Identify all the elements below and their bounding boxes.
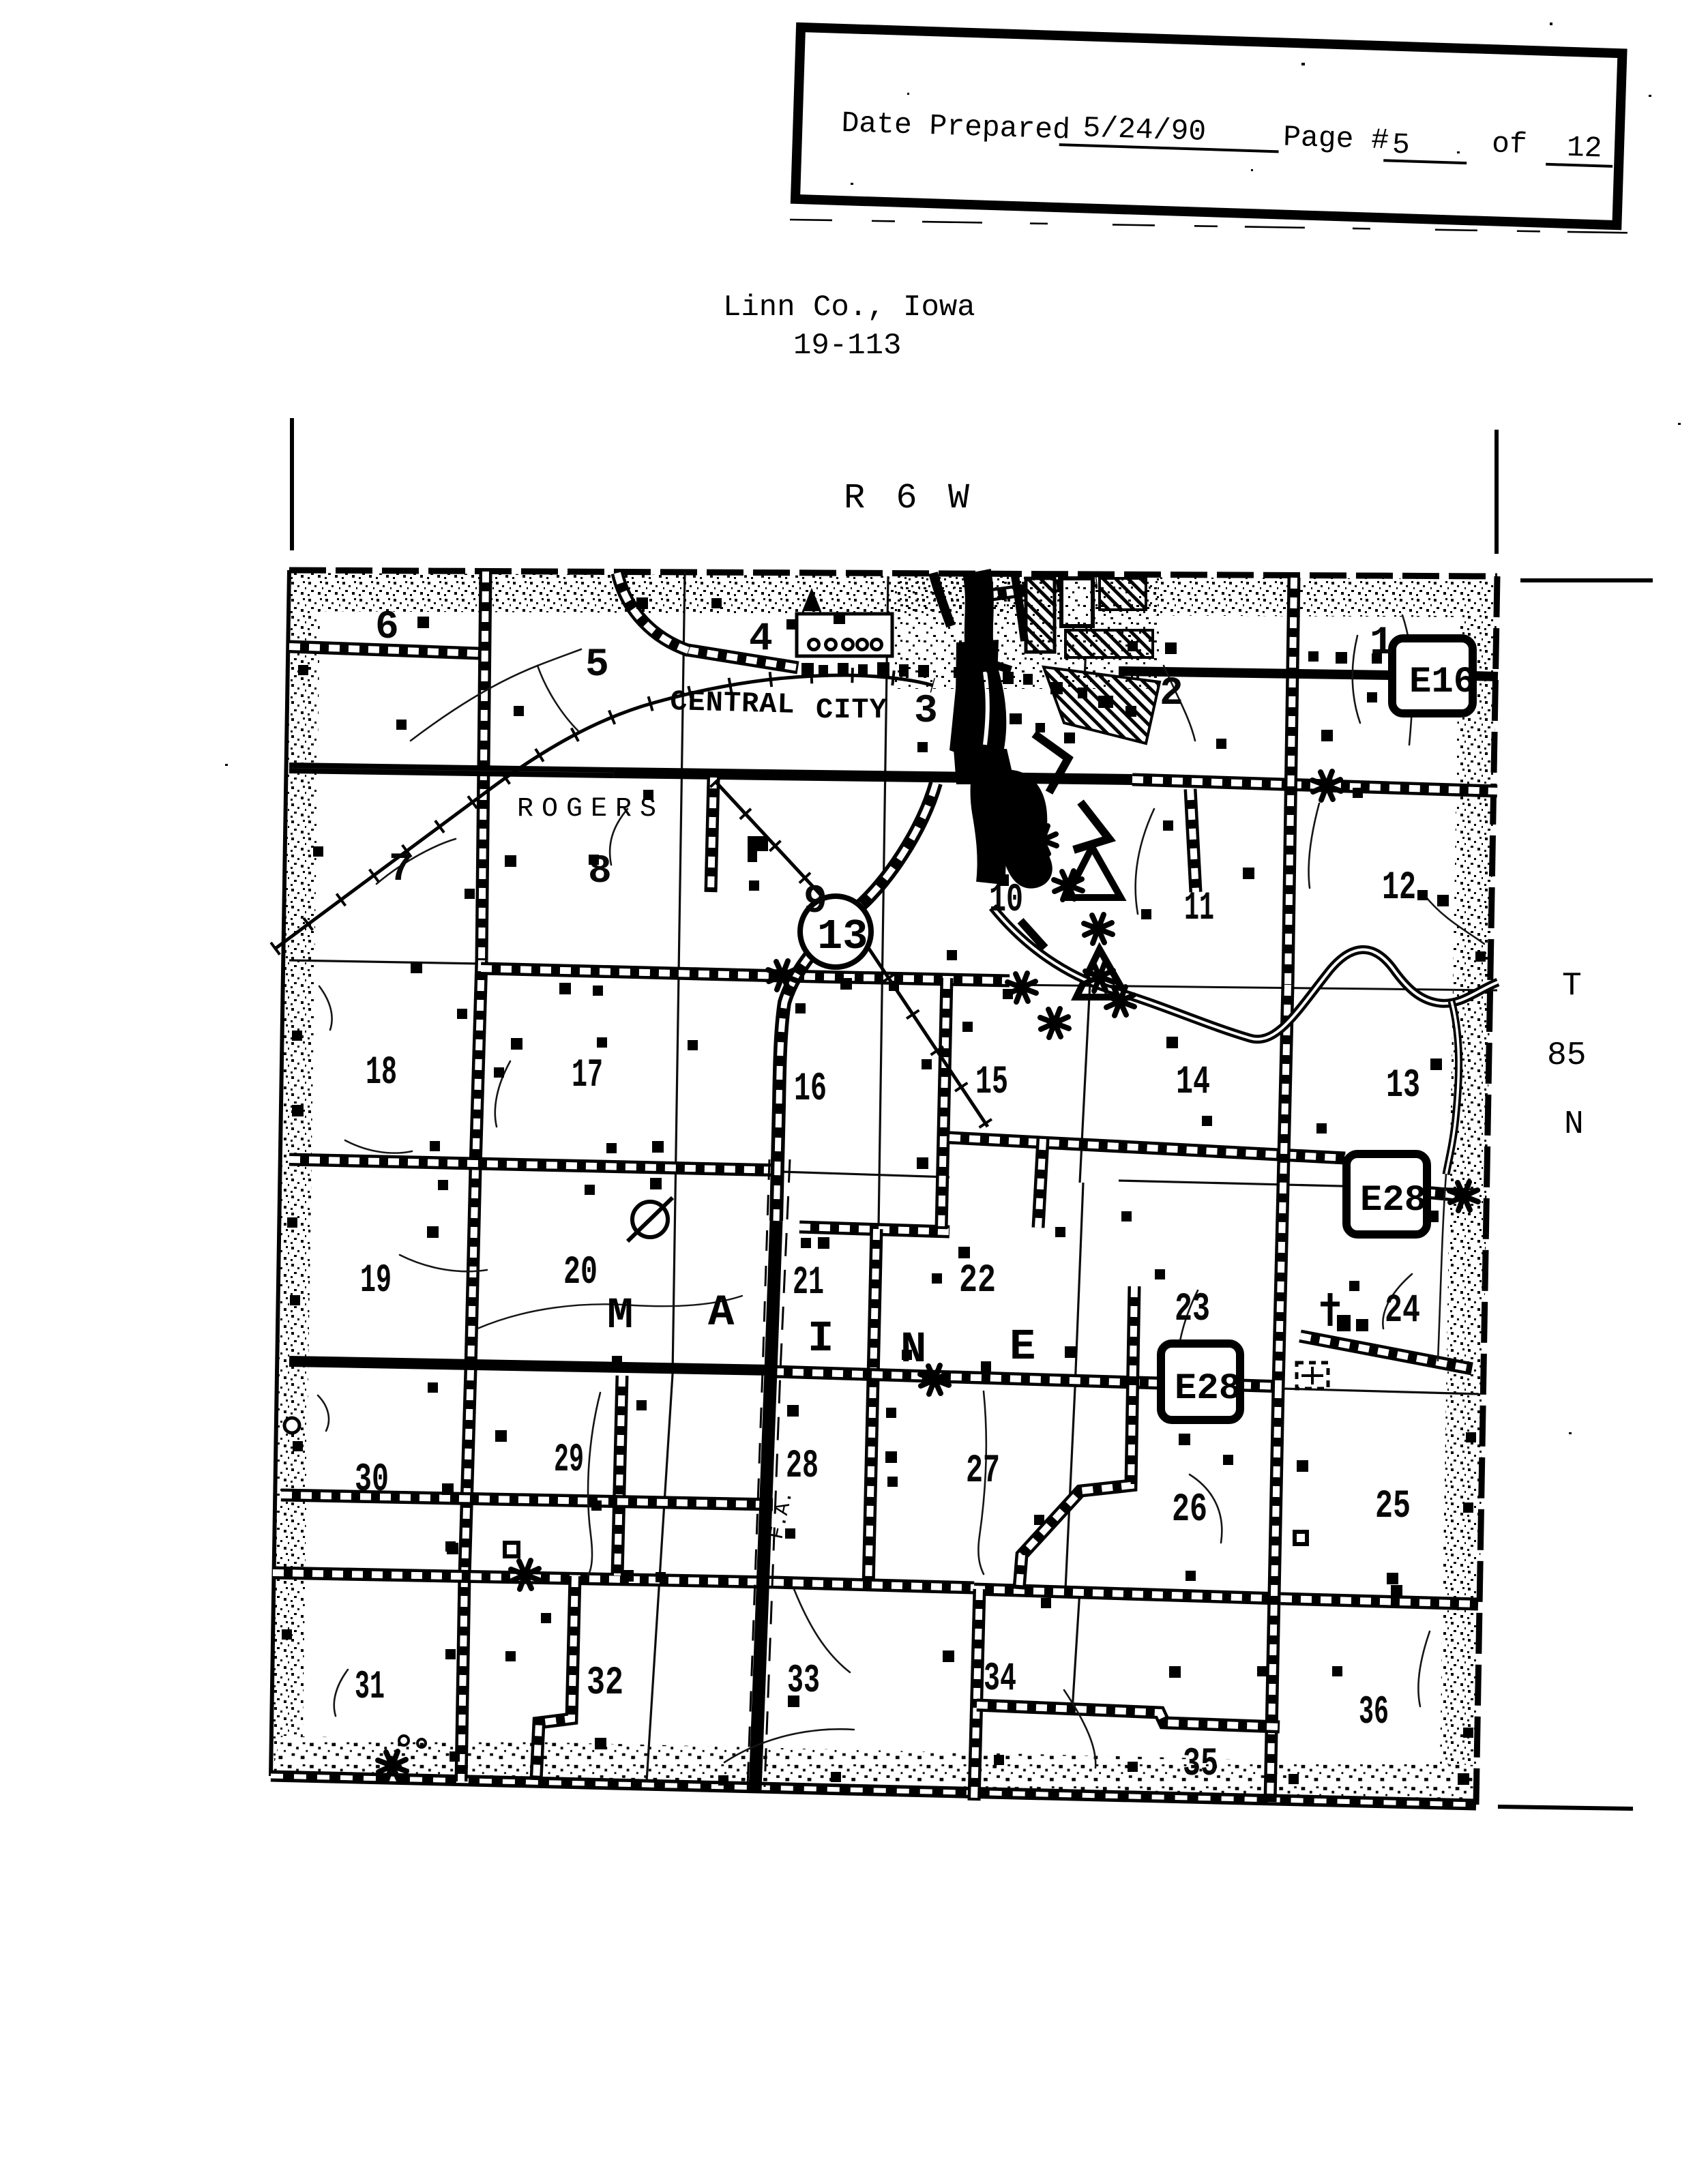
svg-text:20: 20 [563, 1251, 598, 1295]
svg-text:M: M [607, 1292, 633, 1341]
svg-text:N: N [1564, 1106, 1584, 1143]
svg-text:A: A [708, 1289, 735, 1338]
svg-text:29: 29 [554, 1438, 584, 1483]
svg-text:E: E [1010, 1323, 1035, 1372]
svg-text:5: 5 [585, 643, 609, 687]
svg-text:31: 31 [355, 1665, 385, 1710]
svg-text:9: 9 [804, 880, 827, 924]
svg-text:T: T [1562, 968, 1582, 1005]
svg-text:25: 25 [1375, 1485, 1411, 1529]
svg-text:35: 35 [1183, 1743, 1218, 1787]
svg-text:11: 11 [1184, 887, 1214, 931]
svg-text:36: 36 [1359, 1691, 1389, 1735]
svg-text:22: 22 [959, 1259, 996, 1303]
svg-text:2: 2 [1160, 672, 1183, 716]
svg-text:28: 28 [786, 1445, 819, 1489]
svg-text:30: 30 [355, 1458, 389, 1502]
svg-text:85: 85 [1547, 1037, 1587, 1074]
svg-text:6: 6 [375, 606, 399, 650]
svg-text:CENTRAL: CENTRAL [670, 685, 796, 722]
svg-text:34: 34 [984, 1657, 1016, 1702]
svg-text:21: 21 [793, 1261, 824, 1305]
svg-text:5/24/90: 5/24/90 [1083, 111, 1207, 149]
svg-text:ROGERS: ROGERS [517, 794, 664, 825]
svg-text:E28: E28 [1360, 1180, 1426, 1221]
svg-text:12: 12 [1382, 866, 1416, 910]
svg-text:4: 4 [749, 617, 773, 662]
svg-text:R 6 W: R 6 W [844, 478, 974, 518]
svg-text:16: 16 [794, 1067, 827, 1112]
svg-text:13: 13 [1386, 1064, 1420, 1108]
svg-text:26: 26 [1172, 1488, 1207, 1532]
svg-text:24: 24 [1385, 1289, 1420, 1333]
svg-text:15: 15 [975, 1061, 1008, 1105]
svg-text:23: 23 [1175, 1288, 1210, 1332]
svg-text:14: 14 [1176, 1061, 1210, 1105]
svg-text:12: 12 [1566, 131, 1602, 166]
svg-text:7: 7 [389, 848, 413, 892]
svg-text:Page #: Page # [1282, 121, 1389, 158]
svg-text:Linn Co., Iowa: Linn Co., Iowa [723, 291, 975, 325]
svg-text:19: 19 [360, 1259, 392, 1303]
svg-text:19-113: 19-113 [793, 329, 901, 363]
svg-text:32: 32 [587, 1661, 623, 1706]
svg-text:E16: E16 [1409, 662, 1475, 703]
svg-text:27: 27 [966, 1449, 1000, 1494]
svg-text:17: 17 [572, 1054, 603, 1098]
svg-text:of: of [1491, 127, 1527, 162]
svg-text:5: 5 [1392, 128, 1410, 162]
svg-text:E28: E28 [1175, 1368, 1241, 1410]
svg-text:3: 3 [914, 690, 938, 734]
svg-text:CITY: CITY [816, 694, 887, 726]
svg-text:I: I [808, 1315, 834, 1364]
svg-text:18: 18 [366, 1051, 397, 1095]
